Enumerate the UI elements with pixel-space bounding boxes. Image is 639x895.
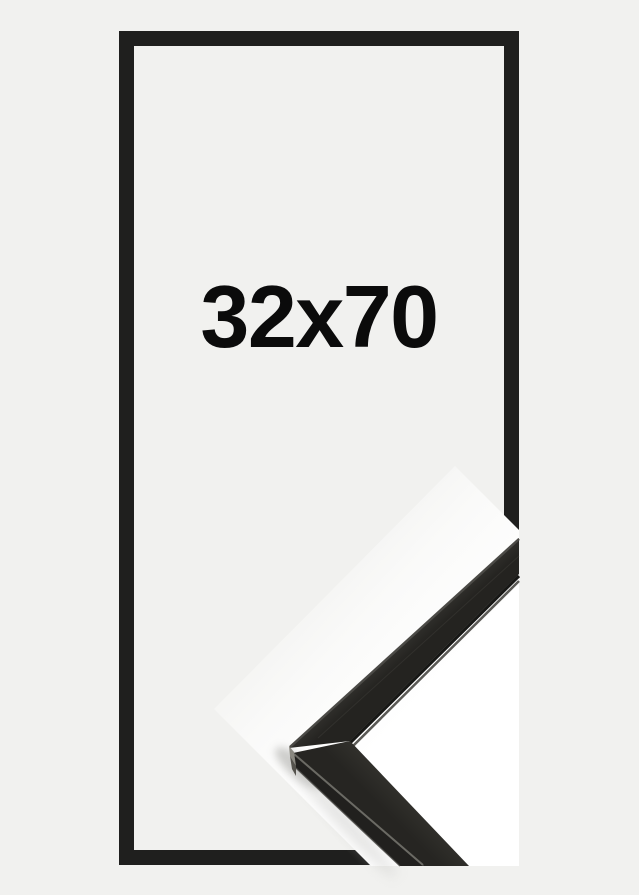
product-image: 32x70 (0, 0, 639, 895)
frame-outline (119, 31, 519, 865)
size-label: 32x70 (119, 273, 519, 361)
